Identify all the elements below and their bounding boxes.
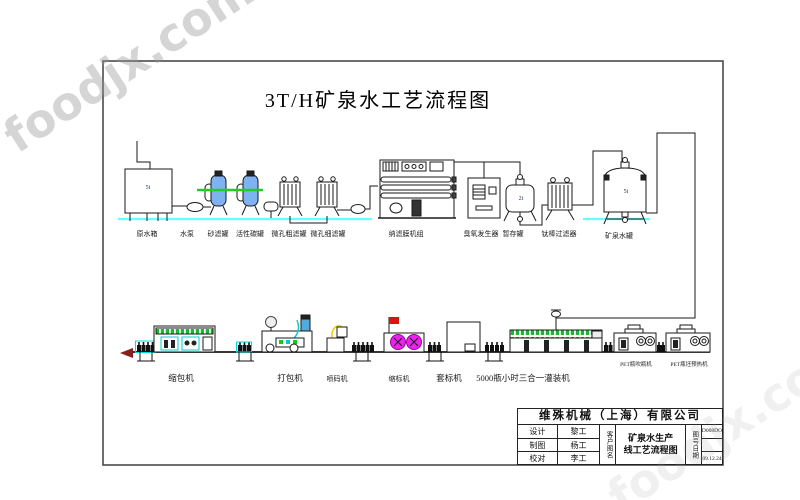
drafter-name: 杨工 <box>558 439 600 453</box>
conveyor-stand <box>137 352 155 361</box>
customer-drawing-label: 客户图名 <box>600 425 616 465</box>
bottle-cluster <box>352 342 374 352</box>
blank-cell <box>702 439 722 453</box>
micropore-fine-filter <box>315 177 339 216</box>
outfeed-arrow <box>120 348 133 358</box>
bottle-cluster <box>428 342 441 352</box>
equipment-label: 套标机 <box>436 373 462 383</box>
drawing-name-line2: 线工艺流程图 <box>624 445 678 457</box>
label-shrinker <box>384 317 424 352</box>
conveyor-stand <box>426 352 444 361</box>
title-block-names: 黎工 杨工 李工 <box>558 425 601 465</box>
equipment-label: 水泵 <box>180 229 194 238</box>
bottle-cluster <box>237 342 252 352</box>
capacity-label: 5t <box>624 189 629 195</box>
shrink-wrapper <box>154 326 215 352</box>
role-check: 校对 <box>518 452 557 465</box>
drawing-name-line1: 矿泉水生产 <box>628 433 673 445</box>
equipment-label: 活性碳罐 <box>236 229 264 238</box>
role-draft: 制图 <box>518 439 557 453</box>
equipment-label: 微孔细滤罐 <box>311 229 346 238</box>
equipment-label: 暂存罐 <box>503 229 524 238</box>
drawing-date: 09.12.24 <box>702 452 722 465</box>
conveyor-stand <box>236 352 254 361</box>
micropore-coarse-filter <box>278 177 302 216</box>
bottle-cluster <box>604 342 613 352</box>
carbon-filter-tank <box>237 171 259 215</box>
line2-labels: 缩包机 打包机 喷码机 缩标机 套标机 5000瓶小时三合一灌装机 PET瓶吹瓶… <box>168 360 708 383</box>
designer-name: 黎工 <box>558 425 600 439</box>
equipment-label: 缩标机 <box>389 374 410 383</box>
number-date-label: 图号日期 <box>686 425 702 465</box>
equipment-label: 缩包机 <box>168 373 194 383</box>
equipment-label: 钛棒过滤器 <box>542 229 577 238</box>
equipment-label: 5000瓶小时三合一灌装机 <box>476 373 570 383</box>
pipe <box>365 186 378 209</box>
bottle-cluster <box>657 342 665 352</box>
equipment-label: 矿泉水罐 <box>605 231 633 240</box>
sand-filter-tank <box>205 171 227 215</box>
baler <box>262 315 312 352</box>
booster-pump <box>264 202 278 218</box>
feed-pump <box>351 205 365 214</box>
equipment-label: PET瓶坯预热机 <box>670 360 708 368</box>
titanium-rod-filter <box>546 178 574 220</box>
inkjet-coder <box>327 326 347 352</box>
equipment-label: 打包机 <box>277 373 303 383</box>
drawing-name: 矿泉水生产 线工艺流程图 <box>616 425 686 465</box>
page-title: 3T/H矿泉水工艺流程图 <box>265 89 491 112</box>
membrane-filter-unit <box>378 160 456 218</box>
equipment-label: 原水箱 <box>137 229 158 238</box>
label-sleever <box>447 322 480 352</box>
bottle-cluster <box>136 341 156 353</box>
title-block: 维殊机械（上海）有限公司 设计 制图 校对 黎工 杨工 李工 客户图名 矿泉水生… <box>517 408 723 465</box>
pet-preform-preheater <box>666 325 710 352</box>
capacity-label: 2t <box>519 196 524 202</box>
drawing-frame <box>103 61 723 465</box>
equipment-label: 微孔粗滤罐 <box>272 229 307 238</box>
equipment-label: 喷码机 <box>327 374 348 383</box>
equipment-label: 臭氧发生器 <box>464 229 499 238</box>
conveyor-stand <box>485 352 503 361</box>
filler-inlet-valve <box>551 310 561 317</box>
drawing-page: 3T/H矿泉水工艺流程图 <box>0 0 800 500</box>
pet-blow-molder <box>614 325 656 352</box>
company-name: 维殊机械（上海）有限公司 <box>518 409 722 425</box>
drawing-number: D008DO <box>702 425 722 439</box>
water-pump <box>187 203 211 212</box>
bottle-cluster <box>485 342 504 352</box>
role-design: 设计 <box>518 425 557 439</box>
checker-name: 李工 <box>558 452 600 465</box>
equipment-label: PET瓶吹瓶机 <box>620 360 652 368</box>
equipment-label: 砂滤罐 <box>208 229 229 238</box>
capacity-label: 5t <box>146 185 151 191</box>
pipe <box>454 162 520 179</box>
equipment-label: 纳滤膜机组 <box>389 229 424 238</box>
title-block-roles: 设计 制图 校对 <box>518 425 558 465</box>
conveyor-stand <box>353 352 371 361</box>
raw-water-tank <box>125 141 172 221</box>
filling-machine <box>510 330 602 352</box>
title-block-values: D008DO 09.12.24 <box>702 425 722 465</box>
ozone-generator <box>468 162 500 218</box>
